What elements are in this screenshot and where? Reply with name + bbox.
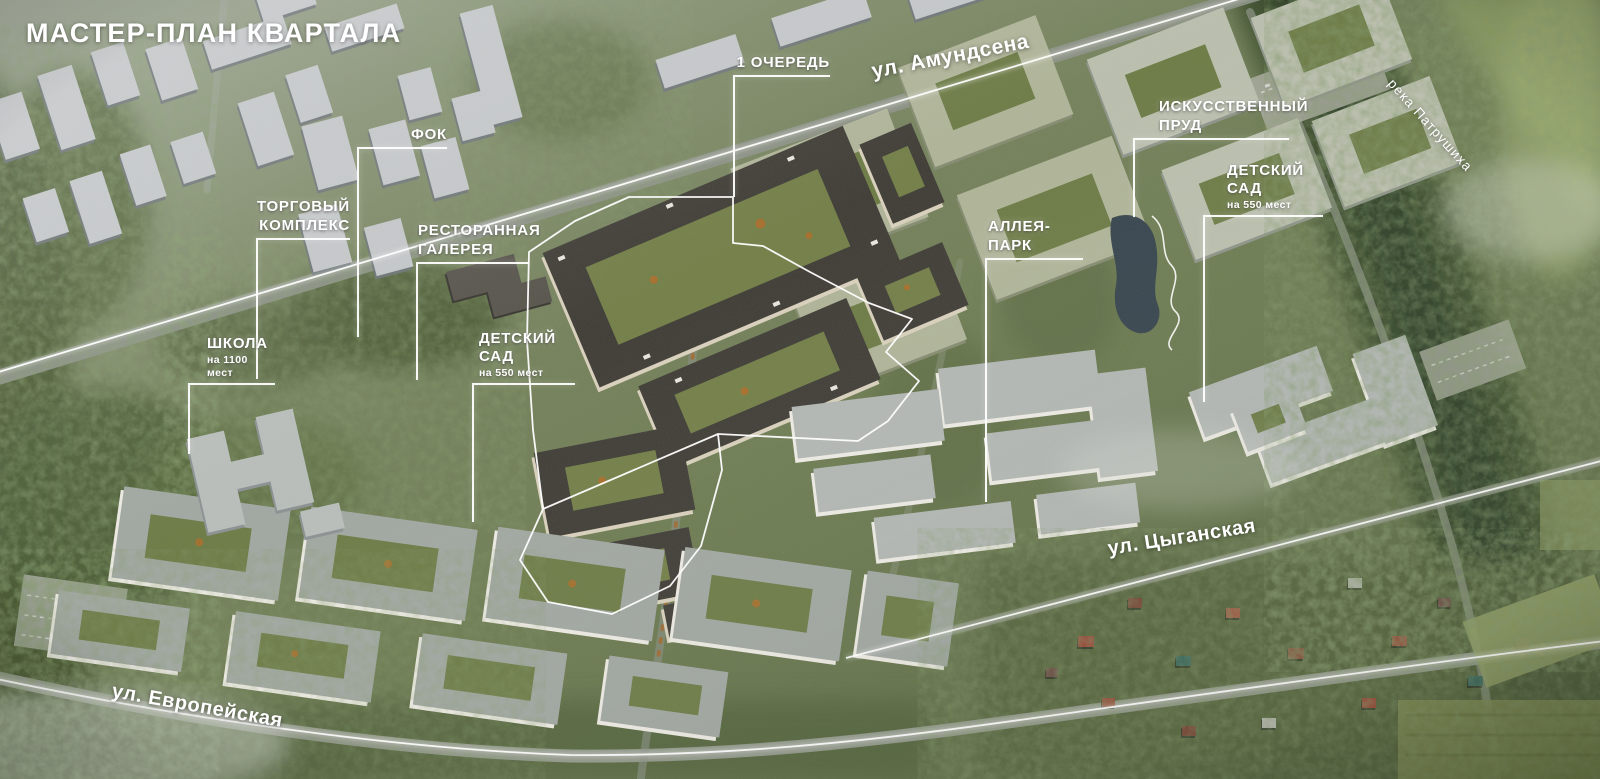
callout-school: ШКОЛАна 1100 мест [188,383,275,454]
callout-phase1-label: 1 ОЧЕРЕДЬ [737,54,830,72]
callout-kindergarten-right-sublabel: на 550 мест [1227,199,1323,212]
page-title: МАСТЕР-ПЛАН КВАРТАЛА [26,18,401,49]
masterplan-canvas: МАСТЕР-ПЛАН КВАРТАЛА 1 ОЧЕРЕДЬ ФОК ТОРГО… [0,0,1600,779]
callout-phase1: 1 ОЧЕРЕДЬ [733,75,830,197]
callout-kindergarten-left: ДЕТСКИЙ САДна 550 мест [472,383,575,522]
callout-kindergarten-left-sublabel: на 550 мест [479,367,575,380]
callout-alley-park-label: АЛЛЕЯ-ПАРК [988,218,1083,255]
callout-kindergarten-left-label: ДЕТСКИЙ САДна 550 мест [479,330,575,380]
callout-alley-park: АЛЛЕЯ-ПАРК [985,258,1083,502]
callout-shopping-center-label: ТОРГОВЫЙ КОМПЛЕКС [257,198,350,235]
callout-school-sublabel: на 1100 мест [207,354,275,380]
callout-artificial-pond-label: ИСКУССТВЕННЫЙ ПРУД [1159,98,1308,135]
callout-restaurant-gallery-label: РЕСТОРАННАЯ ГАЛЕРЕЯ [418,222,541,259]
callout-kindergarten-right-label: ДЕТСКИЙ САДна 550 мест [1227,162,1323,212]
callout-fok-label: ФОК [411,126,447,144]
callout-school-label: ШКОЛАна 1100 мест [207,335,275,380]
callout-kindergarten-right: ДЕТСКИЙ САДна 550 мест [1203,215,1323,402]
